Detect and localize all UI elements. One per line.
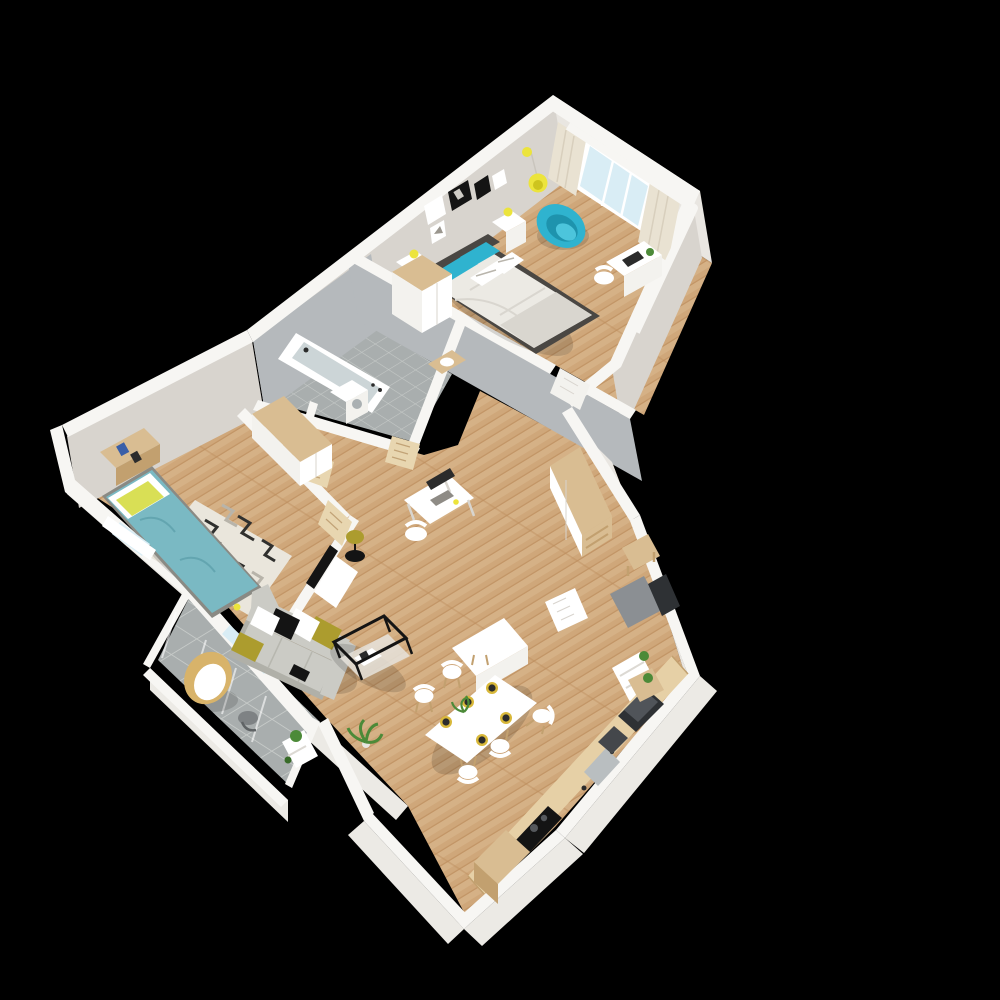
pendant-canopy-yellow: [522, 147, 532, 157]
render-canvas: [0, 0, 1000, 1000]
balcony-plant-2: [285, 757, 292, 764]
counter-item: [582, 786, 587, 791]
kitchen-plant: [643, 673, 653, 683]
yellow-toy: [234, 604, 241, 611]
apartment-floorplan: [0, 0, 1000, 1000]
shelf-plant: [639, 651, 649, 661]
vanity-basin: [440, 358, 454, 367]
cooktop-burner-1: [530, 824, 538, 832]
bathtub-faucet: [304, 348, 309, 353]
lamp-right-yellow: [504, 208, 513, 217]
desk-plant: [646, 248, 654, 256]
washing-machine-door: [352, 399, 362, 409]
balcony-table-top: [238, 711, 258, 725]
balcony-plant: [290, 730, 302, 742]
living-desk-chair: [405, 527, 427, 541]
desk-cup-yellow: [453, 499, 459, 505]
lamp-left-yellow: [410, 250, 419, 259]
bedroom-desk-chair: [594, 272, 614, 285]
floor-lamp-shade: [346, 530, 364, 544]
toiletries-2: [371, 383, 375, 387]
cooktop-burner-2: [541, 815, 547, 821]
toiletries: [378, 388, 382, 392]
pendant-shade-inner: [533, 180, 543, 190]
